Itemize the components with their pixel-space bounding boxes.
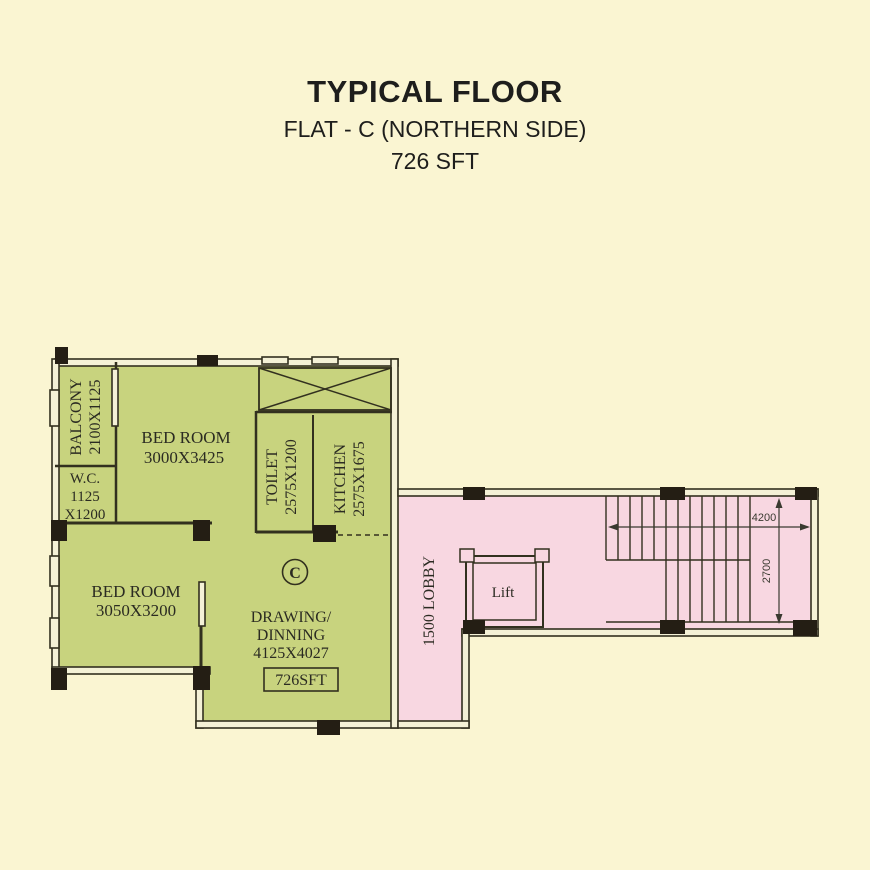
room-bedroom-1: BED ROOM 3000X3425 [141,428,230,467]
wc-dim1-label: 1125 [70,489,99,505]
bedroom1-label: BED ROOM [141,428,230,447]
flat-letter: C [289,565,301,582]
kitchen-label: KITCHEN [332,443,349,514]
room-lift: Lift [492,585,515,601]
drawing-label-line1: DRAWING/ [251,609,332,626]
room-wc: W.C. 1125 X1200 [65,471,106,523]
toilet-label: TOILET [264,449,281,505]
kitchen-dim-label: 2575X1675 [351,441,368,517]
bedroom2-door-leaf [199,582,205,626]
bedroom1-dim-label: 3000X3425 [144,448,224,467]
wc-dim2-label: X1200 [65,507,106,523]
window-mark [50,390,59,426]
balcony-door-leaf [112,369,118,426]
window-mark [50,556,59,586]
floor-plan-drawing: 4200 2700 BALCONY 2100X1125 W.C. 112 [0,0,870,870]
lobby-label: 1500 LOBBY [421,555,438,646]
drawing-label-line2: DINNING [257,627,326,644]
window-mark [50,618,59,648]
room-bedroom-2: BED ROOM 3050X3200 [91,582,180,620]
area-box-label: 726SFT [275,672,327,689]
drawing-dim-label: 4125X4027 [253,645,329,662]
bedroom2-label: BED ROOM [91,582,180,601]
lobby-area-fill [395,496,815,725]
wc-label: W.C. [70,471,100,487]
lift-label: Lift [492,585,515,601]
stair-depth-dimension: 2700 [761,559,773,583]
balcony-label: BALCONY [68,378,85,456]
room-lobby: 1500 LOBBY [421,555,438,646]
toilet-dim-label: 2575X1200 [283,439,300,515]
balcony-dim-label: 2100X1125 [87,380,104,455]
room-drawing-dining: DRAWING/ DINNING 4125X4027 726SFT [251,609,338,691]
stair-width-dimension: 4200 [752,512,776,524]
floor-plan-page: TYPICAL FLOOR FLAT - C (NORTHERN SIDE) 7… [0,0,870,870]
bedroom2-dim-label: 3050X3200 [96,601,176,620]
